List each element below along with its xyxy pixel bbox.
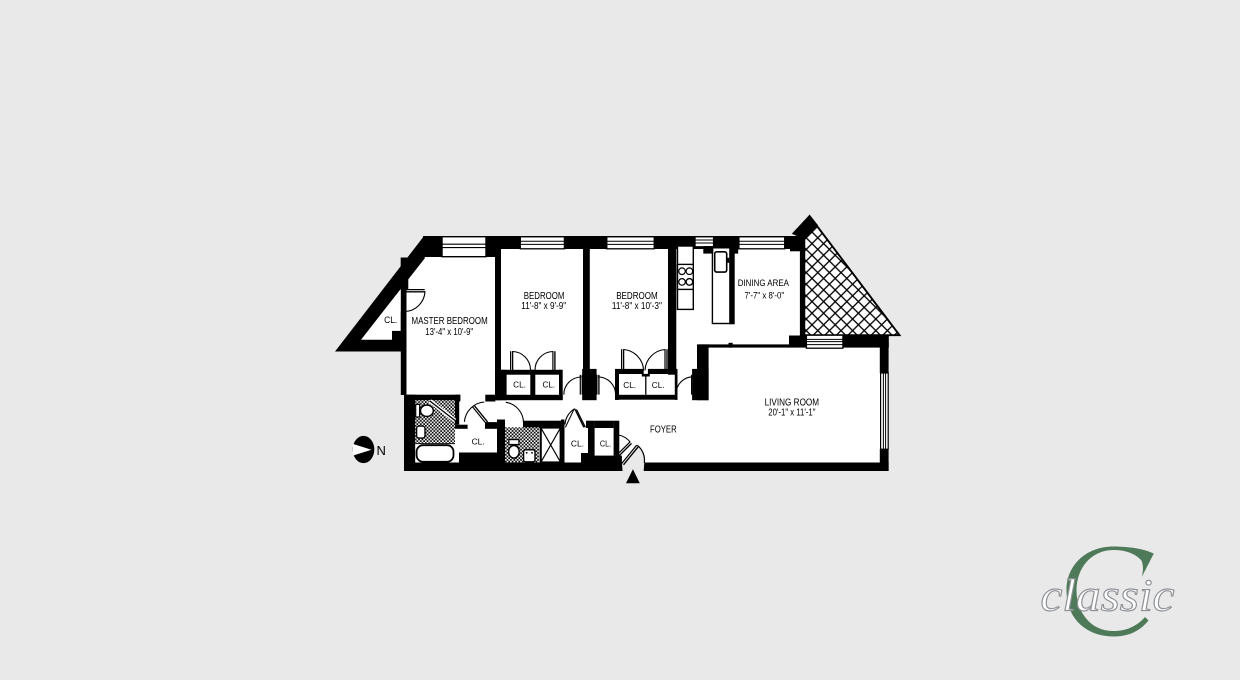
svg-text:BEDROOM: BEDROOM — [524, 290, 565, 302]
svg-text:BEDROOM: BEDROOM — [616, 290, 658, 302]
svg-text:N: N — [377, 443, 386, 458]
svg-text:CL.: CL. — [600, 439, 611, 448]
svg-text:7'-7" x 8'-0": 7'-7" x 8'-0" — [745, 291, 785, 302]
svg-text:CL.: CL. — [384, 315, 397, 326]
svg-text:13'-4" x 10'-9": 13'-4" x 10'-9" — [425, 327, 473, 338]
svg-text:CL.: CL. — [571, 439, 584, 448]
svg-text:11'-8" x 10'-3": 11'-8" x 10'-3" — [612, 301, 662, 312]
svg-text:CL.: CL. — [513, 380, 526, 389]
svg-text:classic: classic — [1041, 570, 1175, 621]
svg-text:FOYER: FOYER — [650, 424, 677, 436]
svg-text:20'-1" x 11'-1": 20'-1" x 11'-1" — [768, 408, 816, 419]
svg-text:CL.: CL. — [472, 437, 485, 446]
svg-text:CL.: CL. — [543, 380, 556, 389]
svg-text:11'-8" x 9'-9": 11'-8" x 9'-9" — [521, 301, 566, 312]
svg-text:CL.: CL. — [652, 381, 665, 390]
svg-text:LIVING ROOM: LIVING ROOM — [765, 396, 820, 408]
svg-text:DINING AREA: DINING AREA — [738, 278, 790, 289]
svg-text:CL.: CL. — [623, 381, 636, 390]
svg-text:MASTER BEDROOM: MASTER BEDROOM — [412, 315, 488, 327]
